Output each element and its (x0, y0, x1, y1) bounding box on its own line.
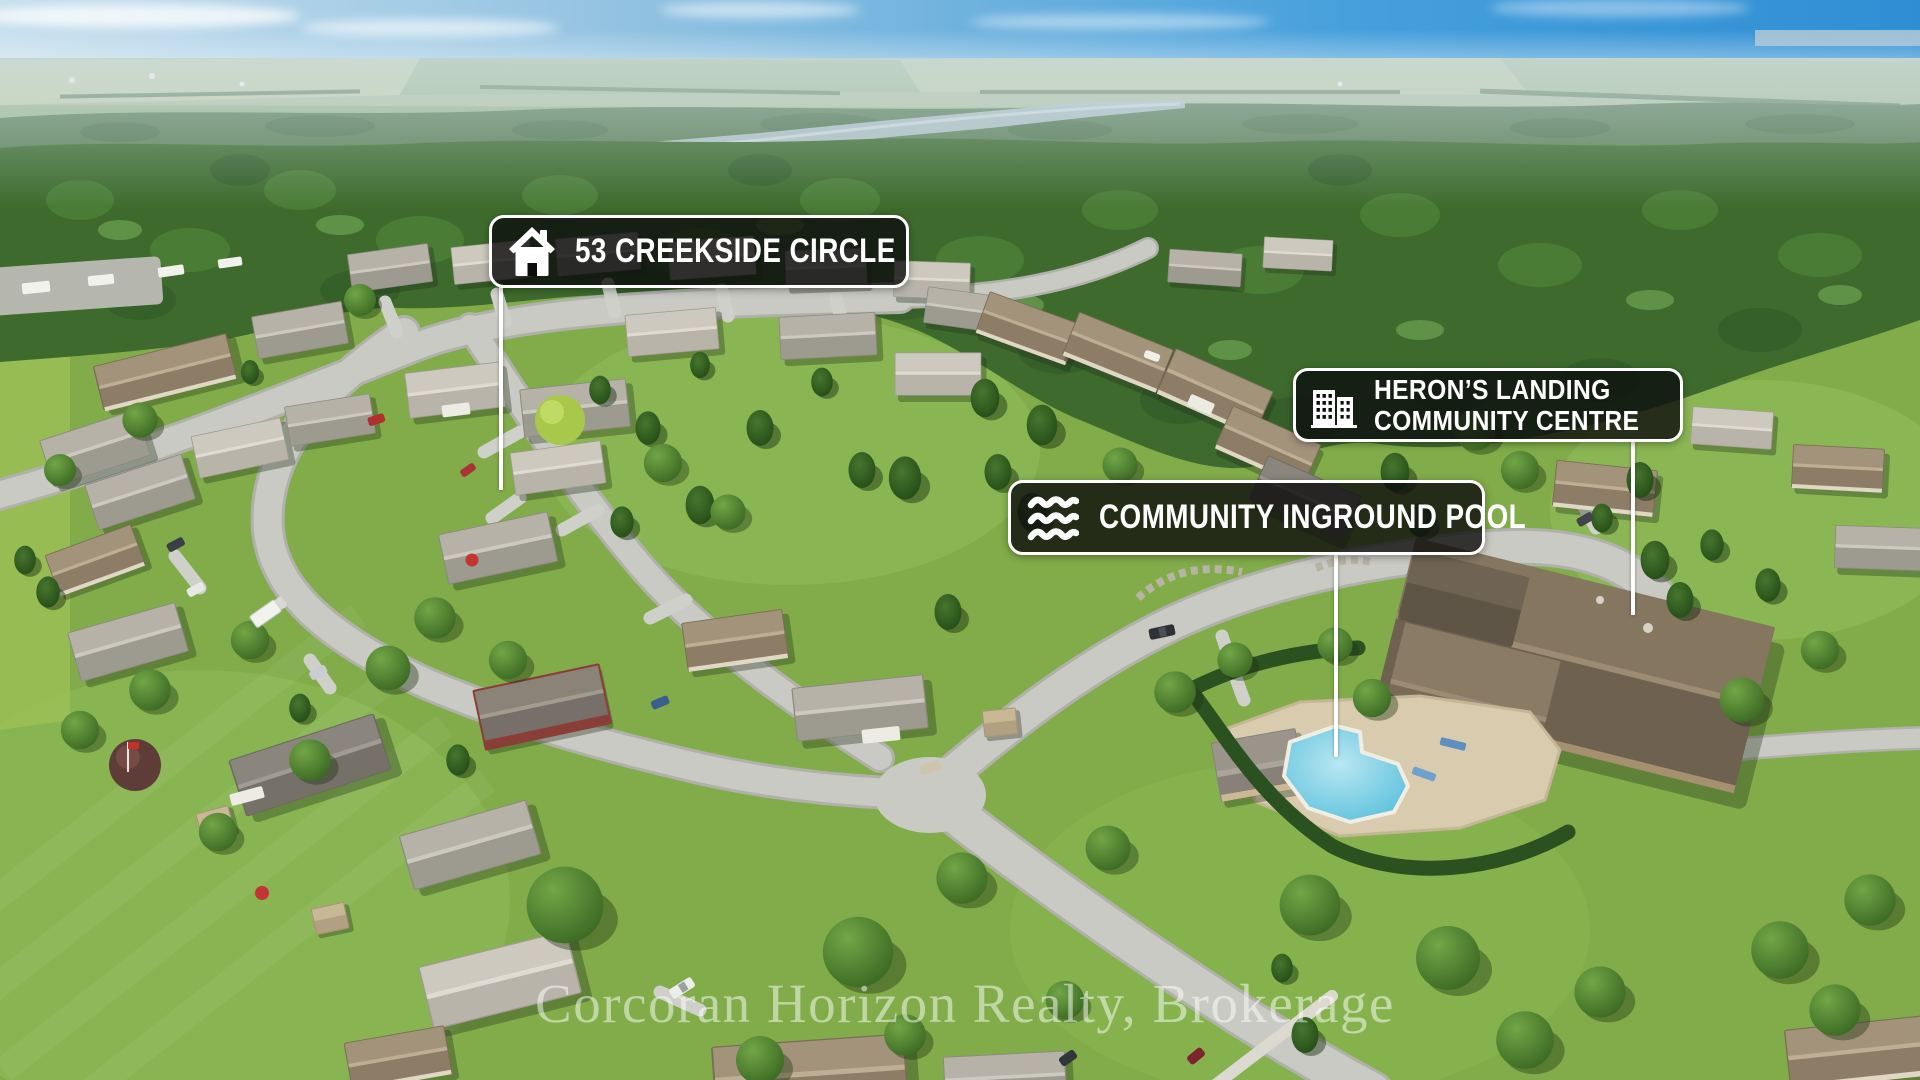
watermark-text: Corcoran Horizon Realty, Brokerage (535, 973, 1395, 1034)
callout-address-label: 53 CREEKSIDE CIRCLE (575, 232, 896, 271)
red-patio-umbrella (466, 554, 479, 567)
callout-pool-label: COMMUNITY INGROUND POOL (1099, 498, 1526, 537)
leader-line-community-centre (1631, 440, 1635, 615)
callout-community-centre-label: HERON’S LANDING COMMUNITY CENTRE (1374, 374, 1675, 437)
callout-pool: COMMUNITY INGROUND POOL (1008, 480, 1485, 555)
red-patio-umbrella-2 (255, 886, 269, 900)
callout-address: 53 CREEKSIDE CIRCLE (489, 215, 909, 288)
leader-line-pool (1334, 553, 1338, 757)
aerial-listing-photo: Corcoran Horizon Realty, Brokerage 53 CR… (0, 0, 1920, 1080)
house-icon (509, 225, 555, 279)
leader-line-address (499, 286, 503, 490)
building-icon (1311, 382, 1357, 428)
atmospheric-haze (0, 58, 1920, 208)
waves-icon (1027, 492, 1079, 544)
callout-community-centre: HERON’S LANDING COMMUNITY CENTRE (1293, 368, 1683, 442)
